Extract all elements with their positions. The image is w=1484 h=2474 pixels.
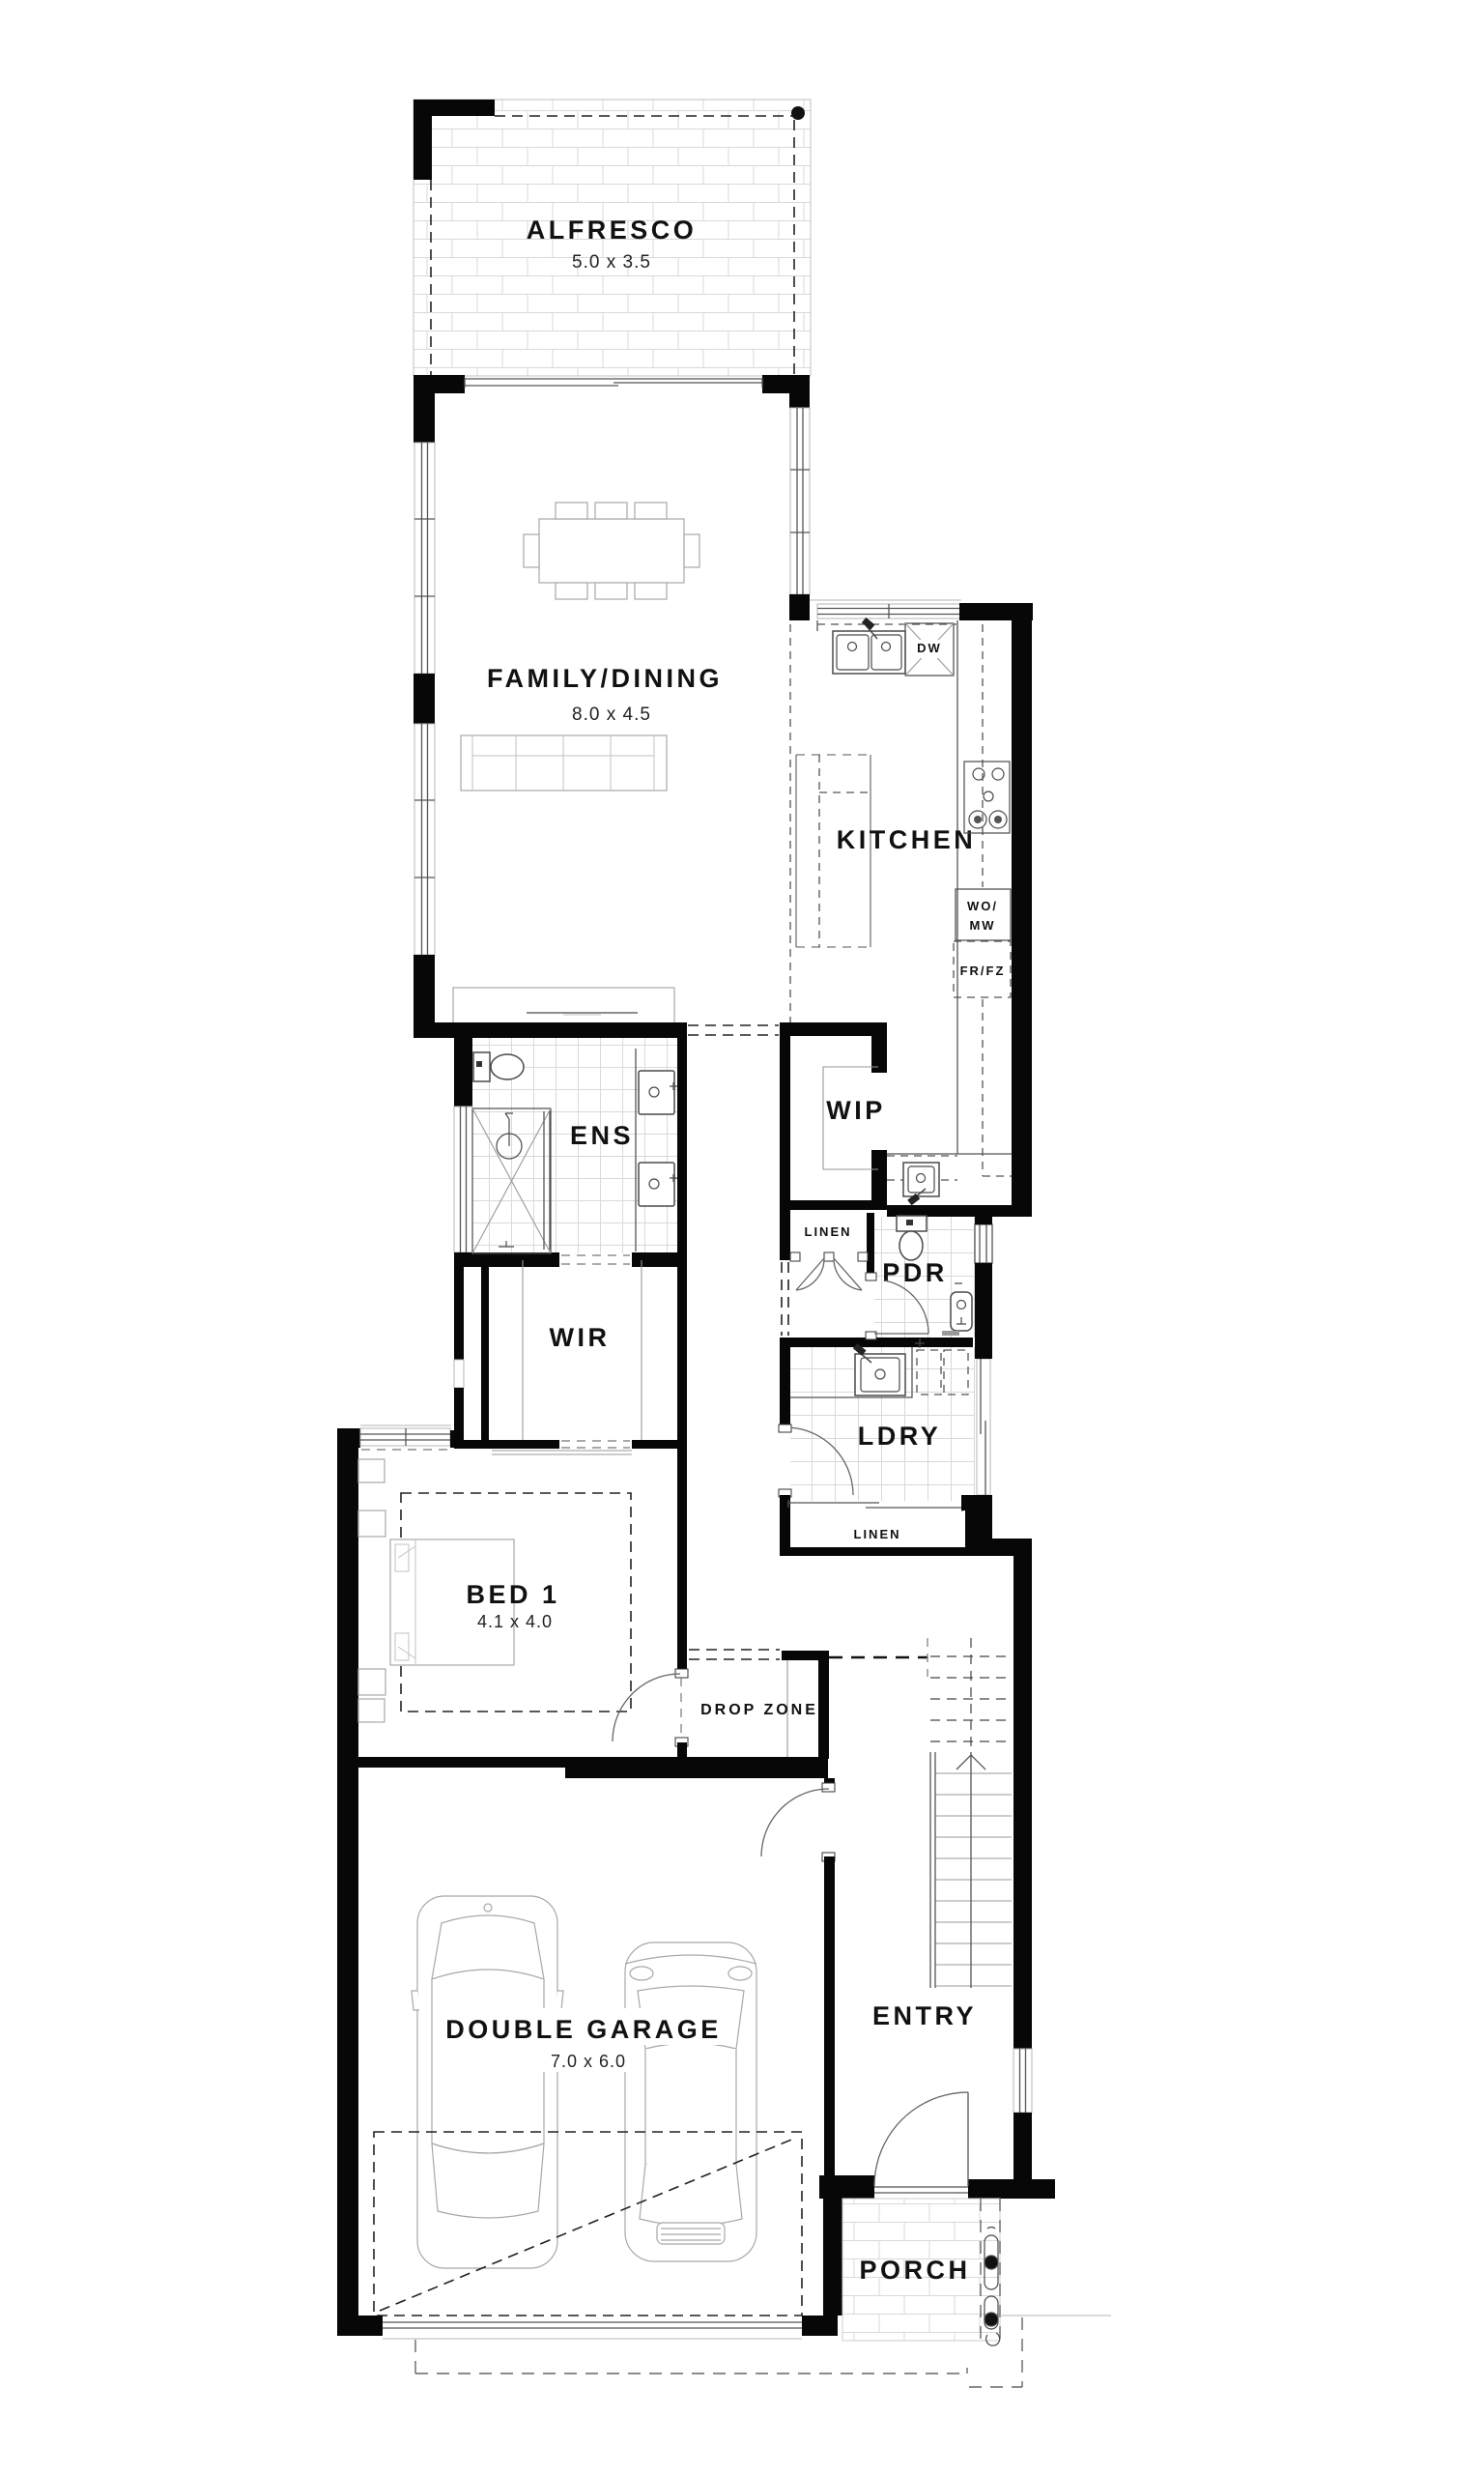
svg-text:4.1 x 4.0: 4.1 x 4.0 (477, 1612, 553, 1631)
svg-text:KITCHEN: KITCHEN (837, 825, 977, 854)
svg-text:DW: DW (917, 641, 942, 655)
svg-text:LINEN: LINEN (854, 1527, 901, 1541)
svg-text:7.0 x 6.0: 7.0 x 6.0 (551, 2052, 626, 2071)
svg-text:ENS: ENS (570, 1121, 634, 1150)
svg-text:WIP: WIP (826, 1096, 886, 1125)
svg-text:FR/FZ: FR/FZ (960, 964, 1006, 978)
svg-text:5.0 x 3.5: 5.0 x 3.5 (572, 252, 651, 273)
svg-text:LDRY: LDRY (858, 1422, 942, 1451)
svg-text:DOUBLE GARAGE: DOUBLE GARAGE (445, 2015, 722, 2044)
svg-text:LINEN: LINEN (805, 1224, 852, 1239)
svg-text:MW: MW (969, 918, 995, 933)
svg-text:DROP ZONE: DROP ZONE (700, 1702, 818, 1718)
svg-text:WIR: WIR (550, 1323, 611, 1352)
svg-text:PORCH: PORCH (859, 2256, 970, 2285)
svg-text:FAMILY/DINING: FAMILY/DINING (487, 664, 723, 693)
svg-text:BED 1: BED 1 (466, 1580, 559, 1609)
svg-text:8.0 x 4.5: 8.0 x 4.5 (572, 705, 651, 725)
svg-text:ALFRESCO: ALFRESCO (527, 216, 698, 245)
svg-text:WO/: WO/ (967, 899, 998, 913)
svg-text:ENTRY: ENTRY (872, 2001, 977, 2030)
